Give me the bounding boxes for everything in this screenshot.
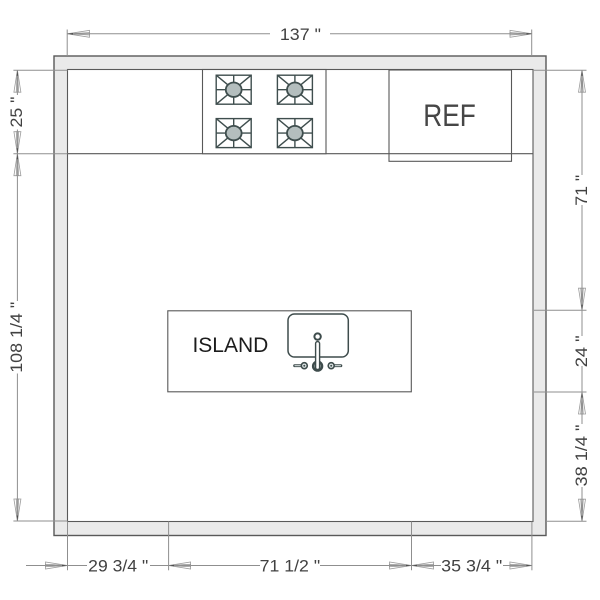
svg-text:24 ": 24 " — [572, 335, 591, 367]
svg-text:137 ": 137 " — [280, 25, 321, 44]
svg-text:25 ": 25 " — [7, 97, 26, 128]
svg-text:29 3/4 ": 29 3/4 " — [88, 557, 148, 576]
svg-text:ISLAND: ISLAND — [192, 334, 268, 357]
svg-text:71 1/2 ": 71 1/2 " — [260, 557, 321, 576]
svg-text:71 ": 71 " — [572, 175, 591, 206]
svg-text:35 3/4 ": 35 3/4 " — [441, 557, 502, 576]
svg-text:REF: REF — [423, 97, 476, 133]
svg-text:108 1/4 ": 108 1/4 " — [7, 302, 26, 373]
svg-text:38 1/4 ": 38 1/4 " — [572, 425, 591, 487]
